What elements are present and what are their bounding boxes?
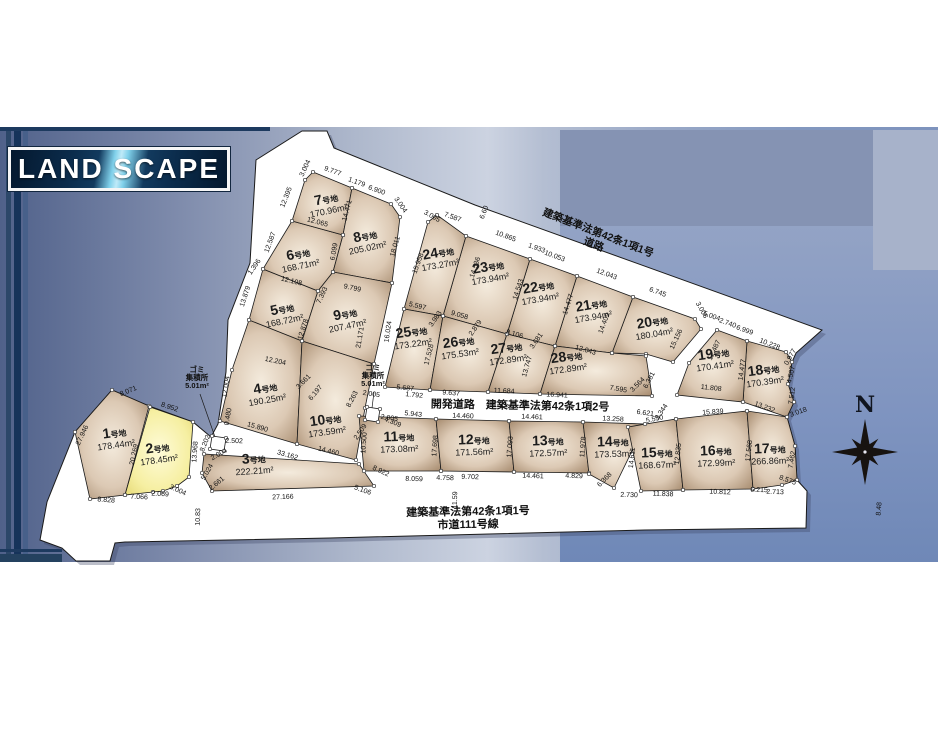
- garbage-square-2: [365, 407, 380, 422]
- survey-dot: [681, 488, 684, 491]
- survey-dot: [639, 489, 642, 492]
- survey-dot: [341, 233, 344, 236]
- survey-dot: [486, 390, 489, 393]
- dimension-label: 17.698: [431, 435, 439, 457]
- compass-north-label: N: [855, 392, 875, 418]
- dimension-label: 27.166: [272, 494, 294, 502]
- survey-dot: [575, 274, 578, 277]
- dimension-label: 14.460: [452, 413, 474, 421]
- dimension-label: 8.071: [119, 385, 138, 398]
- survey-dot: [464, 234, 467, 237]
- dimension-label: 11.684: [493, 387, 514, 395]
- dimension-label: 8.48: [876, 502, 884, 516]
- survey-dot: [191, 420, 194, 423]
- dimension-label: 2.713: [766, 489, 784, 497]
- survey-dot: [261, 267, 264, 270]
- dimension-label: 11.838: [652, 491, 673, 499]
- dimension-label: 9.702: [461, 474, 479, 482]
- survey-dot: [123, 493, 126, 496]
- survey-dot: [439, 469, 442, 472]
- svg-text:172.57m²: 172.57m²: [529, 447, 567, 458]
- dimension-label: 10.83: [195, 508, 203, 526]
- survey-dot: [378, 407, 381, 410]
- survey-dot: [398, 215, 401, 218]
- survey-dot: [687, 361, 690, 364]
- survey-dot: [354, 458, 357, 461]
- svg-text:市道111号線: 市道111号線: [437, 516, 498, 531]
- survey-dot: [785, 415, 788, 418]
- survey-dot: [372, 484, 375, 487]
- survey-dot: [626, 425, 629, 428]
- svg-text:172.99m²: 172.99m²: [697, 457, 735, 468]
- survey-dot: [187, 475, 190, 478]
- dimension-label: 14.461: [522, 473, 544, 481]
- survey-dot: [553, 344, 556, 347]
- survey-dot: [88, 497, 91, 500]
- survey-dot: [303, 178, 306, 181]
- survey-dot: [295, 442, 298, 445]
- survey-dot: [745, 409, 748, 412]
- svg-text:173.08m²: 173.08m²: [380, 443, 418, 454]
- dimension-label: 16.941: [546, 391, 568, 399]
- survey-dot: [402, 307, 405, 310]
- dimension-label: 13.968: [191, 441, 199, 463]
- svg-text:173.53m²: 173.53m²: [594, 448, 632, 459]
- survey-dot: [699, 327, 702, 330]
- survey-dot: [650, 394, 653, 397]
- dimension-label: 8.828: [97, 496, 115, 504]
- survey-dot: [290, 219, 293, 222]
- dimension-label: 10.812: [709, 489, 731, 497]
- dimension-label: 17.093: [506, 436, 514, 458]
- survey-dot: [715, 328, 718, 331]
- page: LAND SCAPE ゴミ集積所5.01m²ゴミ集積所5.01m²3.0049.…: [0, 0, 938, 753]
- compass-rose: [832, 419, 898, 485]
- survey-dot: [784, 350, 787, 353]
- survey-dot: [208, 447, 211, 450]
- survey-dot: [73, 430, 76, 433]
- survey-dot: [507, 419, 510, 422]
- dimension-label: 13.258: [602, 415, 624, 423]
- survey-dot: [362, 469, 365, 472]
- survey-dot: [110, 388, 113, 391]
- survey-dot: [376, 420, 379, 423]
- dimension-label: 2.502: [225, 438, 243, 446]
- survey-dot: [793, 444, 796, 447]
- survey-dot: [383, 385, 386, 388]
- dimension-label: 4.758: [436, 475, 454, 483]
- survey-dot: [528, 257, 531, 260]
- survey-dot: [357, 462, 360, 465]
- survey-dot: [390, 281, 393, 284]
- survey-dot: [331, 270, 334, 273]
- dimension-label: 14.461: [521, 414, 543, 422]
- survey-dot: [230, 368, 233, 371]
- survey-dot: [741, 400, 744, 403]
- land-plot-map: ゴミ集積所5.01m²ゴミ集積所5.01m²3.0049.7771.1796.9…: [0, 0, 938, 753]
- garbage-label-1: ゴミ集積所5.01m²: [185, 364, 210, 390]
- survey-dot: [357, 414, 360, 417]
- survey-dot: [434, 417, 437, 420]
- survey-dot: [365, 405, 368, 408]
- survey-dot: [745, 339, 748, 342]
- svg-text:168.67m²: 168.67m²: [638, 459, 676, 470]
- survey-dot: [631, 295, 634, 298]
- dimension-label: 10.500: [360, 432, 368, 454]
- svg-text:171.56m²: 171.56m²: [455, 446, 493, 457]
- survey-dot: [538, 392, 541, 395]
- survey-dot: [675, 393, 678, 396]
- survey-dot: [780, 483, 783, 486]
- survey-dot: [671, 360, 674, 363]
- dimension-label: 11.978: [579, 436, 587, 457]
- survey-dot: [612, 486, 615, 489]
- survey-dot: [512, 470, 515, 473]
- survey-dot: [247, 318, 250, 321]
- survey-dot: [693, 317, 696, 320]
- survey-dot: [644, 354, 647, 357]
- survey-dot: [610, 351, 613, 354]
- survey-dot: [389, 202, 392, 205]
- survey-dot: [426, 220, 429, 223]
- survey-dot: [581, 420, 584, 423]
- survey-dot: [428, 388, 431, 391]
- survey-dot: [148, 405, 151, 408]
- survey-dot: [587, 472, 590, 475]
- survey-dot: [218, 419, 221, 422]
- dimension-label: 2.069: [151, 491, 169, 499]
- dimension-label: 2.730: [620, 492, 638, 500]
- dimension-label: 15.839: [702, 408, 724, 416]
- survey-dot: [350, 186, 353, 189]
- survey-dot: [674, 417, 677, 420]
- survey-dot: [311, 170, 314, 173]
- dimension-label: 8.059: [405, 476, 423, 484]
- survey-dot: [363, 418, 366, 421]
- dimension-label: 4.829: [565, 473, 583, 481]
- survey-dot: [372, 362, 375, 365]
- dimension-label: 9.637: [442, 389, 460, 397]
- dimension-label: 7.066: [130, 494, 148, 502]
- svg-text:266.86m²: 266.86m²: [751, 455, 789, 466]
